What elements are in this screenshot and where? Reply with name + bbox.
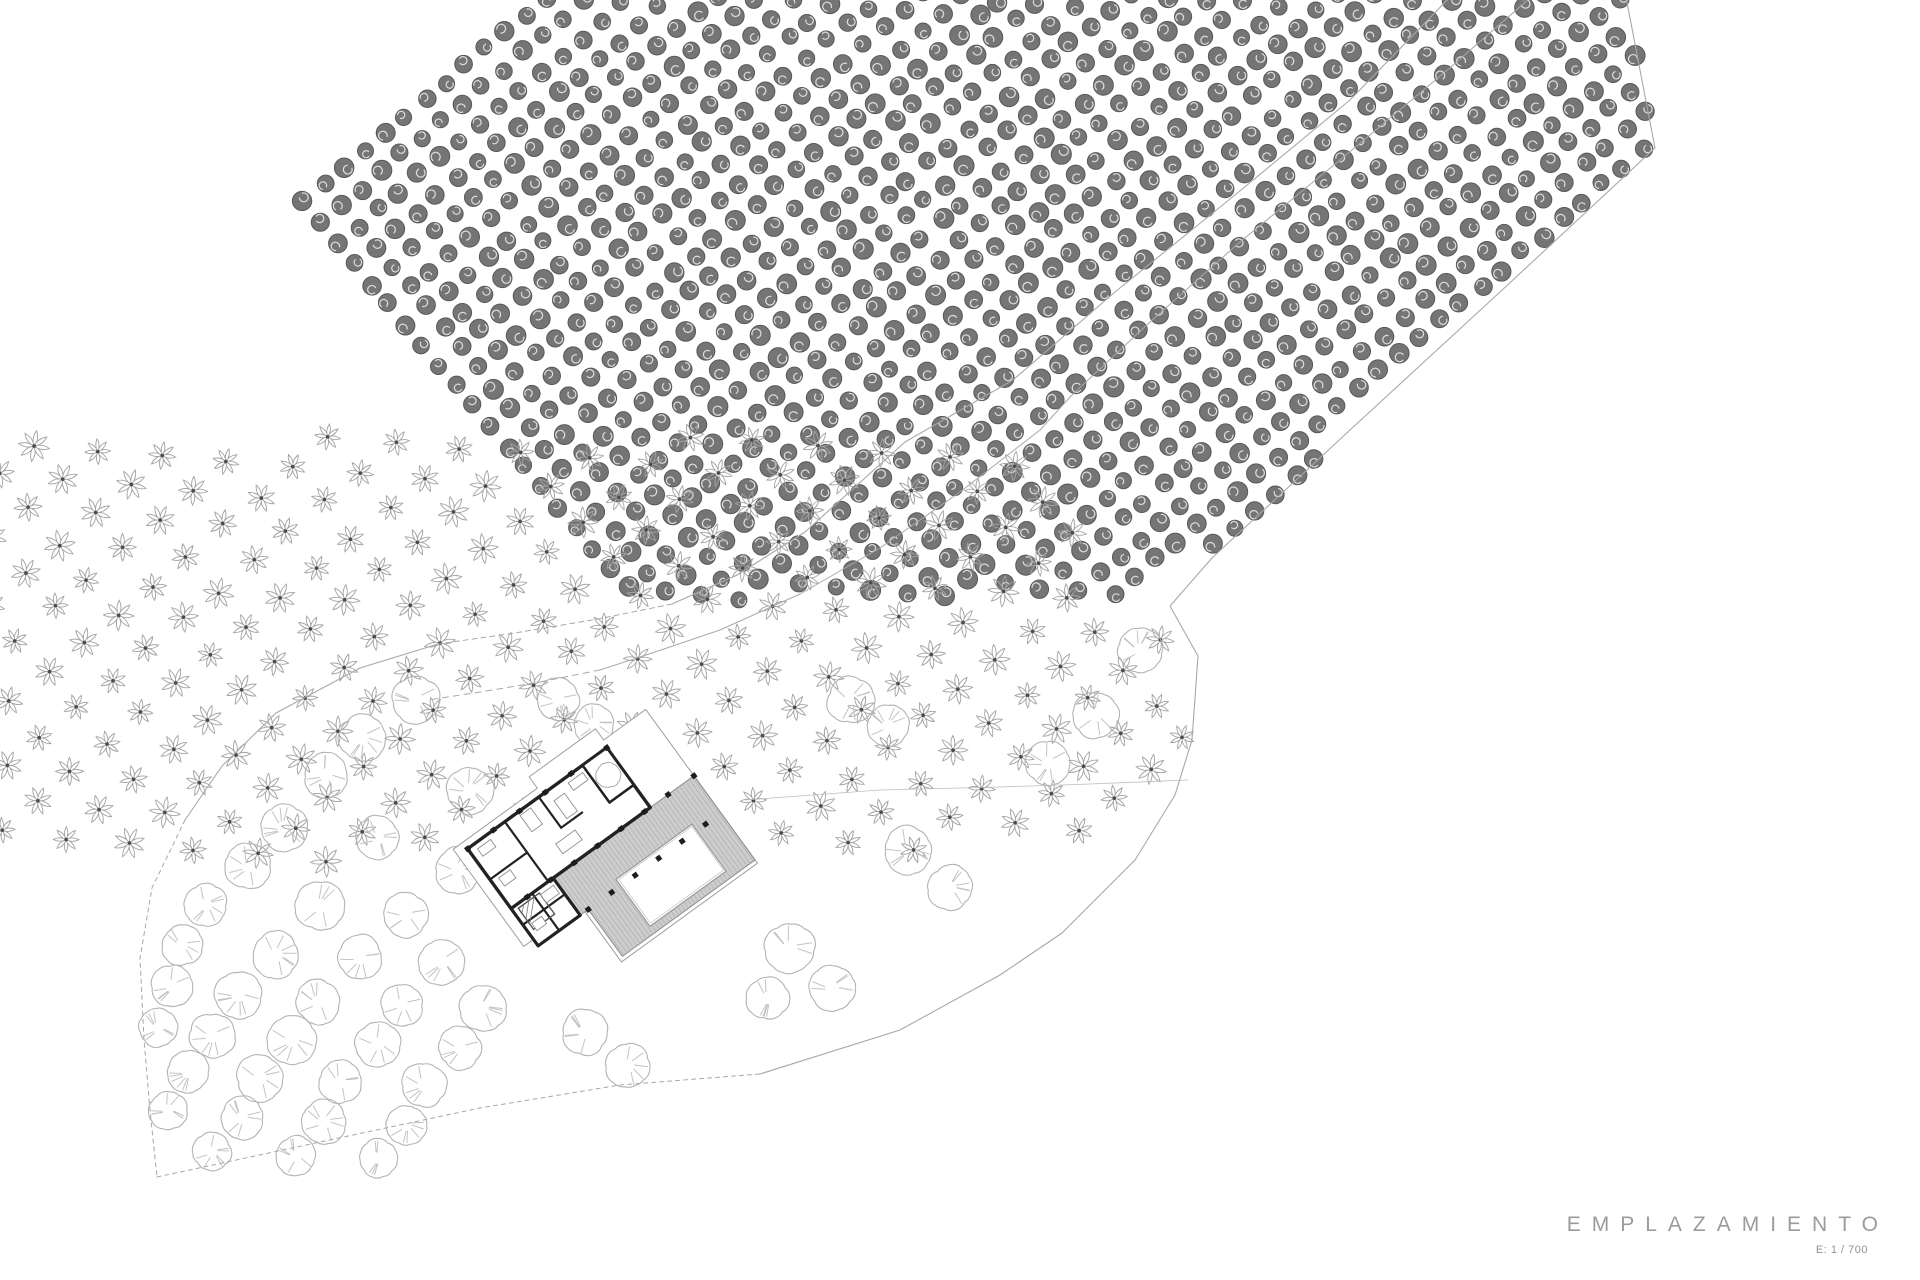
page-title: EMPLAZAMIENTO (1567, 1213, 1889, 1237)
building (445, 697, 760, 1003)
dense-dark-grove (292, 0, 1654, 608)
titleblock: EMPLAZAMIENTO E: 1 / 700 (1567, 1213, 1878, 1256)
scale-label: E: 1 / 700 (1567, 1244, 1868, 1256)
site-plan-sheet: EMPLAZAMIENTO E: 1 / 700 (0, 0, 1920, 1280)
tree-layer (0, 0, 1654, 877)
site-plan-drawing (0, 0, 1920, 1280)
